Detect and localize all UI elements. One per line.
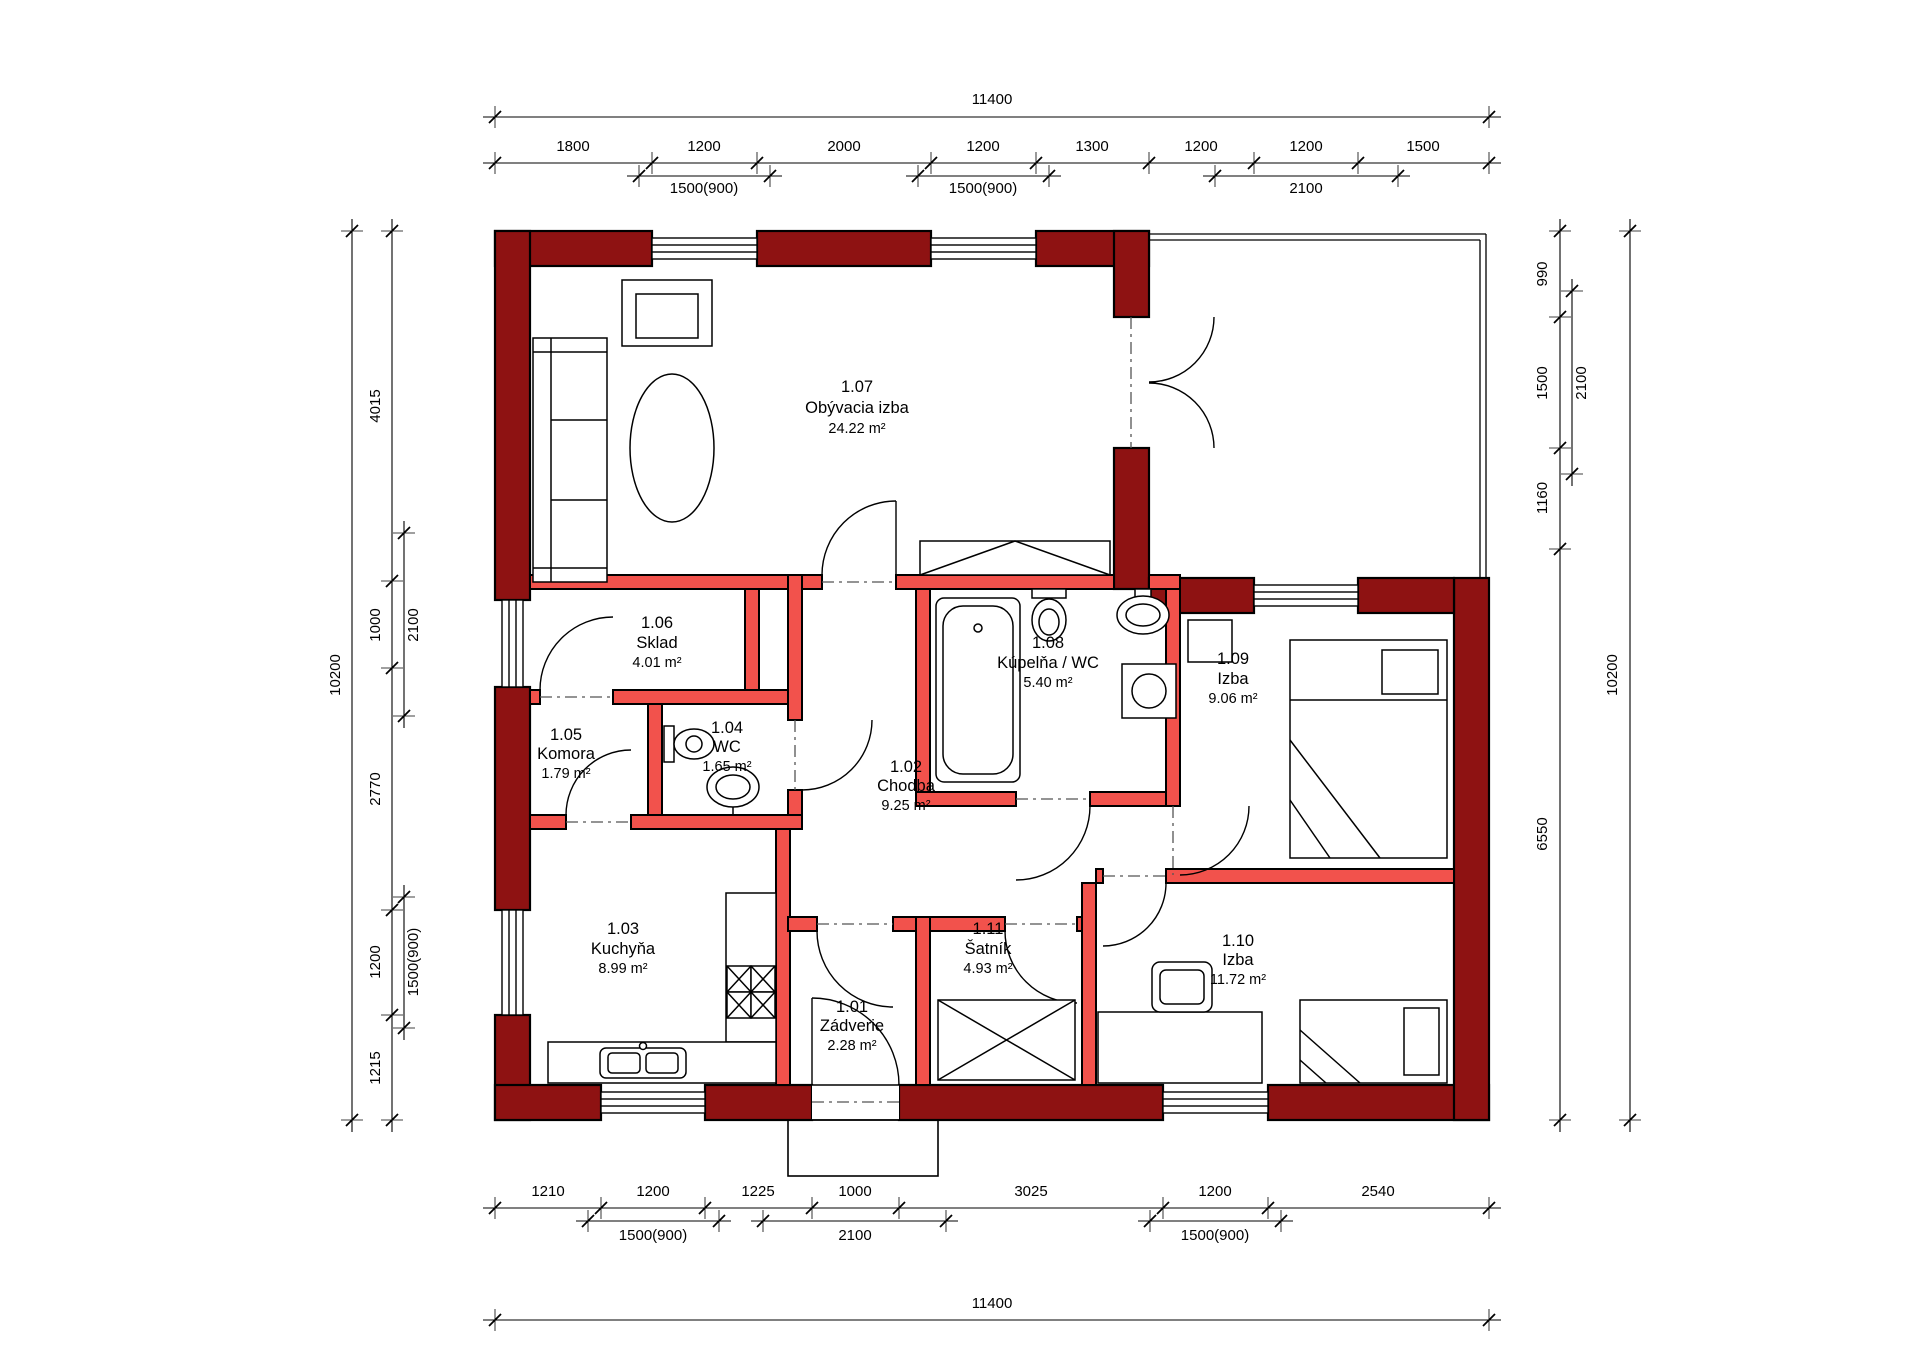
- door-swing: [1016, 806, 1090, 880]
- svg-text:1.02: 1.02: [890, 758, 922, 776]
- door-swing: [1103, 883, 1166, 946]
- svg-text:1.79 m²: 1.79 m²: [541, 766, 590, 782]
- svg-text:Kuchyňa: Kuchyňa: [591, 940, 656, 958]
- svg-text:1200: 1200: [367, 945, 384, 978]
- svg-text:1500(900): 1500(900): [1181, 1227, 1249, 1244]
- svg-text:1200: 1200: [966, 138, 999, 155]
- svg-text:9.25 m²: 9.25 m²: [881, 798, 930, 814]
- svg-text:Komora: Komora: [537, 745, 596, 763]
- svg-text:Sklad: Sklad: [636, 634, 677, 652]
- svg-text:1200: 1200: [1289, 138, 1322, 155]
- svg-text:2100: 2100: [838, 1227, 871, 1244]
- door-swing: [1180, 806, 1249, 875]
- window: [1163, 1092, 1268, 1113]
- svg-text:1225: 1225: [741, 1183, 774, 1200]
- svg-text:10200: 10200: [327, 654, 344, 696]
- desk: [1098, 1012, 1262, 1083]
- svg-text:1160: 1160: [1534, 482, 1551, 514]
- svg-text:1300: 1300: [1075, 138, 1108, 155]
- floor-plan-canvas: 1.07 Obývacia izba 24.22 m² 1.06 Sklad 4…: [0, 0, 1919, 1357]
- wardrobe: [938, 1000, 1075, 1080]
- door-swing: [802, 720, 872, 790]
- svg-text:4015: 4015: [367, 389, 384, 422]
- window: [931, 238, 1036, 259]
- door-swing: [1149, 383, 1214, 448]
- svg-text:1200: 1200: [687, 138, 720, 155]
- svg-text:24.22 m²: 24.22 m²: [828, 421, 885, 437]
- svg-text:2100: 2100: [1289, 180, 1322, 197]
- svg-text:3025: 3025: [1014, 1183, 1047, 1200]
- svg-text:WC: WC: [713, 738, 741, 756]
- window: [601, 1092, 705, 1113]
- floor-plan-page: 1.07 Obývacia izba 24.22 m² 1.06 Sklad 4…: [0, 0, 1919, 1357]
- svg-text:2540: 2540: [1361, 1183, 1394, 1200]
- washing-machine: [1122, 664, 1176, 718]
- svg-text:1.07: 1.07: [841, 378, 873, 396]
- svg-text:1.03: 1.03: [607, 920, 639, 938]
- room-label-kuchyna: 1.03 Kuchyňa 8.99 m²: [591, 920, 656, 977]
- sofa: [533, 338, 607, 582]
- room-label-zadverie: 1.01 Zádverie 2.28 m²: [820, 998, 884, 1054]
- svg-text:11400: 11400: [972, 1295, 1013, 1312]
- window: [502, 600, 523, 687]
- svg-text:1.10: 1.10: [1222, 932, 1254, 950]
- svg-text:8.99 m²: 8.99 m²: [598, 961, 647, 977]
- svg-text:1200: 1200: [1198, 1183, 1231, 1200]
- svg-text:1200: 1200: [636, 1183, 669, 1200]
- svg-text:2100: 2100: [405, 608, 422, 641]
- svg-text:1000: 1000: [367, 608, 384, 641]
- svg-text:Chodba: Chodba: [877, 777, 936, 795]
- window: [1254, 585, 1358, 606]
- svg-text:1800: 1800: [556, 138, 589, 155]
- svg-text:1.65 m²: 1.65 m²: [702, 759, 751, 775]
- coffee-table: [630, 374, 714, 522]
- svg-text:Kúpelňa / WC: Kúpelňa / WC: [997, 654, 1099, 672]
- svg-text:4.93 m²: 4.93 m²: [963, 961, 1012, 977]
- svg-text:1.11: 1.11: [973, 920, 1004, 938]
- door-swing: [1005, 931, 1077, 1003]
- bed: [1290, 640, 1447, 858]
- svg-text:1.09: 1.09: [1217, 650, 1249, 668]
- svg-text:10200: 10200: [1604, 654, 1621, 696]
- tv-cabinet: [920, 541, 1110, 575]
- svg-text:1.06: 1.06: [641, 614, 673, 632]
- svg-text:1500: 1500: [1534, 366, 1551, 399]
- room-label-living: 1.07 Obývacia izba 24.22 m²: [805, 378, 909, 437]
- svg-text:1500(900): 1500(900): [949, 180, 1017, 197]
- svg-text:1500(900): 1500(900): [619, 1227, 687, 1244]
- armchair: [622, 280, 712, 346]
- toilet: [664, 726, 714, 762]
- svg-text:2100: 2100: [1573, 366, 1590, 399]
- room-label-izba-110: 1.10 Izba 11.72 m²: [1210, 932, 1266, 988]
- window: [502, 910, 523, 1015]
- svg-text:6550: 6550: [1534, 817, 1551, 850]
- entrance-porch: [788, 1120, 938, 1176]
- svg-text:1.01: 1.01: [836, 998, 868, 1016]
- svg-text:2000: 2000: [827, 138, 860, 155]
- door-swing: [822, 501, 896, 575]
- door-swing: [540, 617, 613, 690]
- kitchen-sink: [600, 1043, 686, 1079]
- window: [652, 238, 757, 259]
- svg-text:2770: 2770: [367, 772, 384, 805]
- svg-text:1500(900): 1500(900): [405, 928, 422, 996]
- chair: [1152, 962, 1212, 1012]
- svg-text:2.28 m²: 2.28 m²: [827, 1038, 876, 1054]
- door-swing: [1149, 317, 1214, 382]
- svg-text:1215: 1215: [367, 1051, 384, 1084]
- bathtub: [936, 598, 1020, 782]
- svg-text:1500(900): 1500(900): [670, 180, 738, 197]
- svg-text:Šatník: Šatník: [965, 939, 1013, 958]
- svg-text:990: 990: [1534, 261, 1551, 286]
- svg-text:5.40 m²: 5.40 m²: [1023, 675, 1072, 691]
- door-swing: [817, 931, 893, 1007]
- svg-text:1000: 1000: [838, 1183, 871, 1200]
- svg-text:Obývacia izba: Obývacia izba: [805, 399, 909, 417]
- svg-text:1.05: 1.05: [550, 726, 582, 744]
- svg-text:1200: 1200: [1184, 138, 1217, 155]
- svg-text:Izba: Izba: [1222, 951, 1254, 969]
- svg-text:9.06 m²: 9.06 m²: [1208, 691, 1257, 707]
- room-label-sklad: 1.06 Sklad 4.01 m²: [632, 614, 681, 671]
- svg-text:1.04: 1.04: [711, 719, 743, 737]
- svg-text:11400: 11400: [972, 91, 1013, 108]
- svg-text:Izba: Izba: [1217, 670, 1249, 688]
- svg-text:1210: 1210: [531, 1183, 564, 1200]
- bed: [1300, 1000, 1447, 1083]
- room-label-komora: 1.05 Komora 1.79 m²: [537, 726, 596, 782]
- svg-text:4.01 m²: 4.01 m²: [632, 655, 681, 671]
- svg-text:1.08: 1.08: [1032, 634, 1064, 652]
- svg-text:11.72 m²: 11.72 m²: [1210, 972, 1266, 988]
- svg-text:Zádverie: Zádverie: [820, 1017, 884, 1035]
- stove: [727, 966, 775, 1018]
- svg-text:1500: 1500: [1406, 138, 1439, 155]
